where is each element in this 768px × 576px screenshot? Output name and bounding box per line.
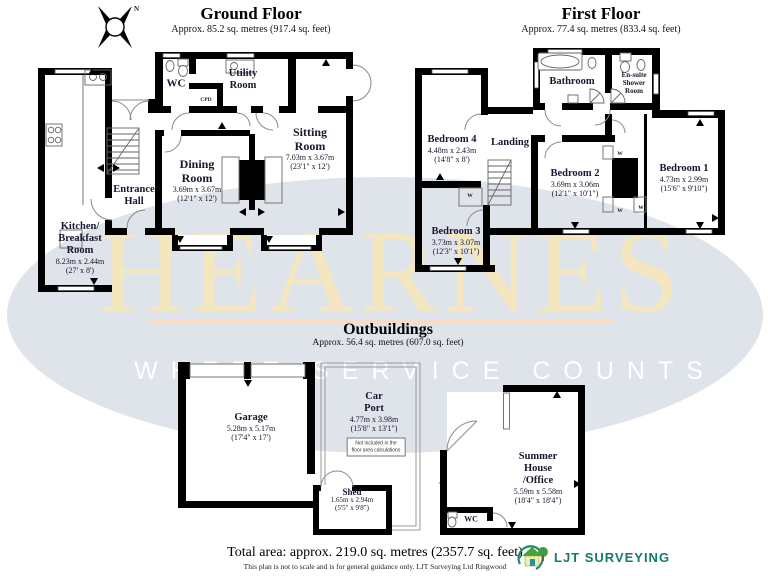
summer-house-wc-fixtures bbox=[448, 512, 457, 527]
room-label-utility: Utility Room bbox=[229, 68, 258, 92]
ground-floor-title: Ground Floor bbox=[200, 4, 301, 24]
room-label-summer-house: Summer House /Office 5.59m x 5.58m (18'4… bbox=[514, 451, 562, 505]
ground-floor-subtitle: Approx. 85.2 sq. metres (917.4 sq. feet) bbox=[171, 24, 330, 35]
floorplan-page: HEARNES WHERE SERVICE COUNTS N Ground Fl… bbox=[0, 0, 768, 576]
svg-text:W: W bbox=[467, 193, 473, 199]
room-label-entrance-hall: Entrance Hall bbox=[113, 184, 154, 208]
room-label-bathroom: Bathroom bbox=[549, 76, 594, 88]
outbuildings-title: Outbuildings bbox=[343, 321, 433, 339]
room-label-shed: Shed 1.65m x 2.94m (5'5" x 9'8") bbox=[331, 487, 373, 513]
svg-text:W: W bbox=[617, 208, 623, 214]
summer-house-window bbox=[504, 393, 510, 429]
shed-door-arcs bbox=[321, 471, 353, 487]
summer-house-plan bbox=[420, 380, 590, 540]
carport-note: Not included in the floor area calculati… bbox=[347, 438, 406, 457]
room-label-sitting: Sitting Room 7.03m x 3.67m (23'1" x 12') bbox=[286, 126, 334, 172]
room-label-bedroom4: Bedroom 4 4.48m x 2.43m (14'8" x 8') bbox=[427, 134, 476, 164]
cupboard-label: CPD bbox=[200, 97, 211, 103]
svg-text:W: W bbox=[617, 151, 623, 157]
room-label-wc-summer: WC bbox=[464, 514, 478, 523]
room-label-bedroom3: Bedroom 3 3.73m x 3.07m (12'3" x 10'1") bbox=[431, 226, 480, 256]
room-label-dining: Dining Room 3.69m x 3.67m (12'1" x 12') bbox=[173, 158, 221, 204]
first-floor-subtitle: Approx. 77.4 sq. metres (833.4 sq. feet) bbox=[521, 24, 680, 35]
outbuildings-subtitle: Approx. 56.4 sq. metres (607.0 sq. feet) bbox=[312, 338, 463, 348]
room-label-landing: Landing bbox=[491, 137, 529, 149]
surveyor-logo-text: LJT Surveying bbox=[554, 550, 670, 565]
room-label-bedroom2: Bedroom 2 3.69m x 3.06m (12'1" x 10'1") bbox=[550, 168, 599, 198]
first-floor-title: First Floor bbox=[562, 4, 641, 24]
room-label-garage: Garage 5.28m x 5.17m (17'4" x 17') bbox=[227, 412, 275, 442]
first-staircase bbox=[488, 160, 511, 205]
room-label-kitchen: Kitchen/ Breakfast Room 8.23m x 2.44m (2… bbox=[56, 221, 104, 275]
compass-north-label: N bbox=[134, 5, 139, 13]
svg-text:W: W bbox=[638, 205, 644, 211]
total-area-text: Total area: approx. 219.0 sq. metres (23… bbox=[227, 545, 523, 561]
surveyor-logo: LJT Surveying bbox=[516, 542, 670, 572]
ground-bay-interiors bbox=[178, 235, 316, 246]
room-label-bedroom1: Bedroom 1 4.73m x 2.99m (15'6" x 9'10") bbox=[659, 163, 708, 193]
disclaimer-text: This plan is not to scale and is for gen… bbox=[244, 562, 507, 571]
compass-icon: N bbox=[92, 2, 142, 48]
room-label-carport: Car Port 4.77m x 3.98m (15'8" x 13'1") bbox=[350, 391, 398, 433]
room-label-ensuite: En-suite Shower Room bbox=[622, 72, 647, 96]
room-label-wc-ground: WC bbox=[167, 78, 186, 91]
surveyor-logo-icon bbox=[516, 542, 550, 572]
